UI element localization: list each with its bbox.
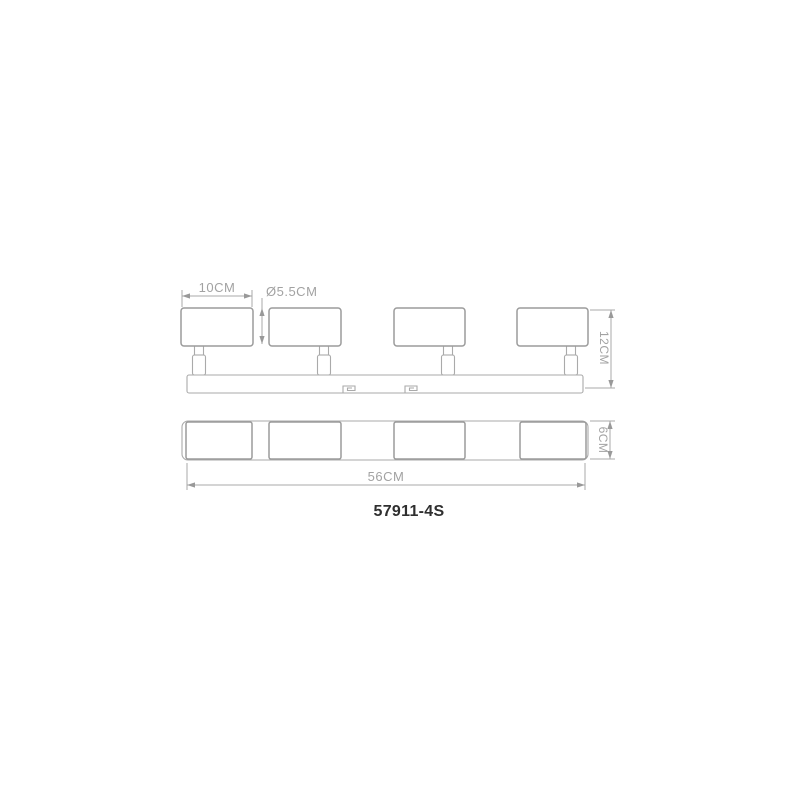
arrow-left-icon bbox=[187, 482, 195, 487]
side-view-head-2 bbox=[269, 308, 341, 346]
side-view-stem-1 bbox=[193, 346, 206, 375]
bottom-view-head-1 bbox=[186, 422, 252, 459]
mounting-clip-2 bbox=[405, 386, 417, 393]
side-view-stem-2 bbox=[318, 346, 331, 375]
arrow-down-icon bbox=[608, 380, 613, 388]
arrow-up-icon bbox=[608, 310, 613, 318]
model-number-label: 57911-4S bbox=[374, 503, 445, 520]
arrow-right-icon bbox=[577, 482, 585, 487]
bottom-view bbox=[182, 421, 588, 460]
side-view-head-3 bbox=[394, 308, 465, 346]
stem-cylinder bbox=[318, 355, 331, 375]
dimension-head-width: 10CM bbox=[182, 280, 252, 307]
arrow-left-icon bbox=[182, 293, 190, 298]
dimension-bar-depth: 6CM bbox=[590, 421, 615, 459]
drawing-page: 10CM Ø5.5CM 12CM 6CM bbox=[0, 0, 800, 800]
bottom-view-head-4 bbox=[520, 422, 586, 459]
stem-cylinder bbox=[565, 355, 578, 375]
head-width-label: 10CM bbox=[199, 280, 236, 295]
head-diameter-label: Ø5.5CM bbox=[266, 284, 317, 299]
technical-drawing: 10CM Ø5.5CM 12CM 6CM bbox=[0, 0, 800, 800]
arrow-right-icon bbox=[244, 293, 252, 298]
total-width-label: 56CM bbox=[368, 469, 405, 484]
side-view-mounting-bar bbox=[187, 375, 583, 393]
side-view-head-1 bbox=[181, 308, 253, 346]
bottom-view-head-3 bbox=[394, 422, 465, 459]
arrow-up-icon bbox=[259, 308, 264, 316]
dimension-total-width: 56CM bbox=[187, 463, 585, 490]
total-height-label: 12CM bbox=[597, 331, 611, 365]
stem-neck bbox=[320, 346, 329, 355]
side-view-head-4 bbox=[517, 308, 588, 346]
arrow-down-icon bbox=[259, 336, 264, 344]
mounting-clip-1 bbox=[343, 386, 355, 393]
stem-cylinder bbox=[193, 355, 206, 375]
bar-depth-label: 6CM bbox=[596, 427, 610, 454]
stem-neck bbox=[444, 346, 453, 355]
stem-neck bbox=[195, 346, 204, 355]
side-view-stem-4 bbox=[565, 346, 578, 375]
bottom-view-head-2 bbox=[269, 422, 341, 459]
stem-cylinder bbox=[442, 355, 455, 375]
side-view-stem-3 bbox=[442, 346, 455, 375]
stem-neck bbox=[567, 346, 576, 355]
dimension-total-height: 12CM bbox=[585, 310, 615, 388]
side-view bbox=[181, 308, 588, 393]
